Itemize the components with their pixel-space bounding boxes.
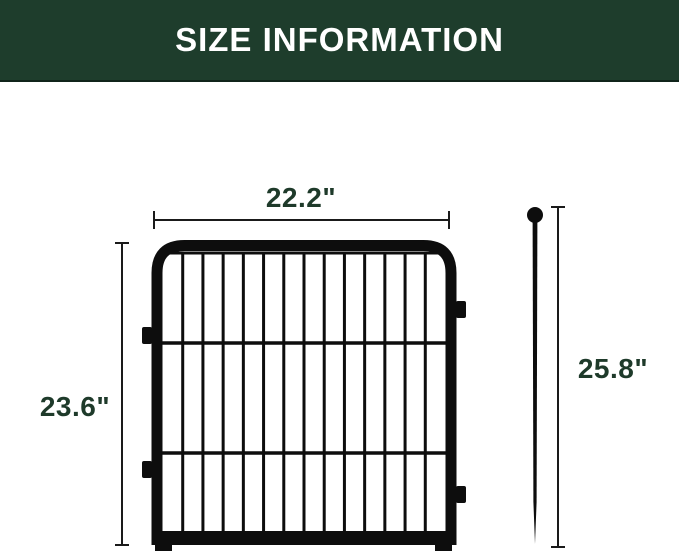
fence-vertical-bars: [183, 252, 426, 534]
fence-foot-right: [435, 545, 452, 551]
stake-height-label: 25.8": [578, 353, 648, 384]
fence-tab-right-upper: [456, 301, 466, 318]
fence-tab-left-lower: [142, 461, 152, 478]
stake-rod: [533, 220, 538, 544]
fence-panel: [142, 246, 466, 552]
width-dimension-line: [154, 211, 449, 229]
panel-height-label: 23.6": [40, 391, 110, 422]
ground-stake: [527, 207, 543, 544]
fence-tab-left-upper: [142, 327, 152, 344]
fence-foot-left: [155, 545, 172, 551]
fence-bottom-rail: [152, 531, 457, 545]
fence-tab-right-lower: [456, 486, 466, 503]
size-diagram: 22.2" 23.6": [0, 0, 679, 552]
panel-width-label: 22.2": [266, 182, 336, 213]
size-infographic: SIZE INFORMATION 22.2" 23.6": [0, 0, 679, 552]
height-dimension-line: [115, 243, 129, 545]
stake-dimension-line: [551, 207, 565, 547]
